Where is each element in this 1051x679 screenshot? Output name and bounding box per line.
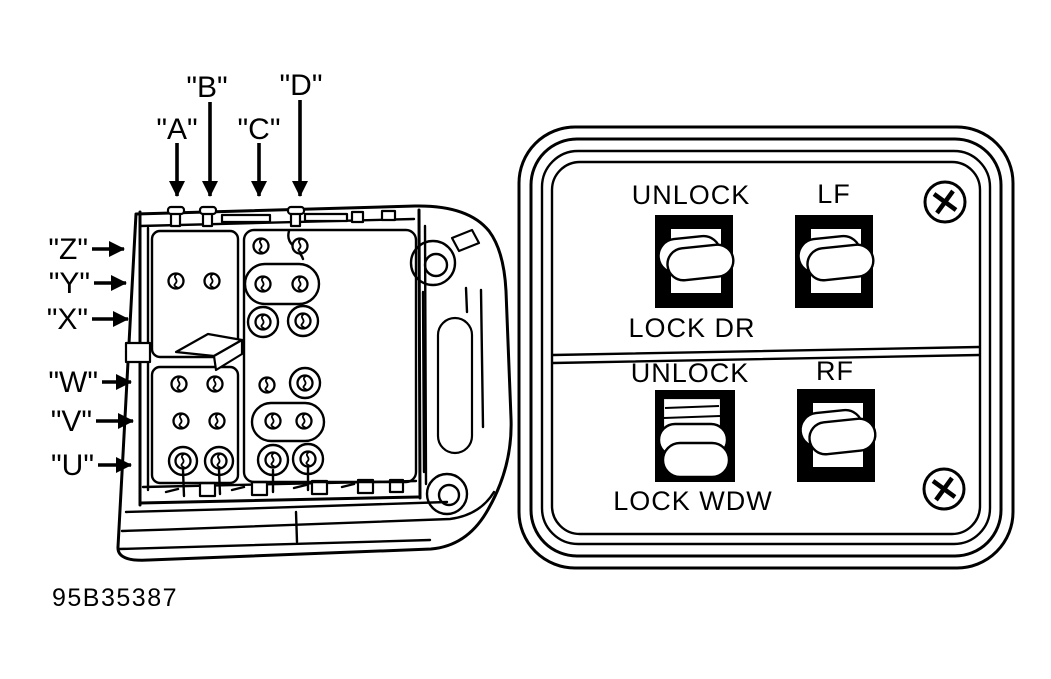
terminal-pin — [174, 414, 189, 429]
terminal-pin — [301, 452, 316, 467]
rf-window-rocker-switch — [797, 389, 877, 482]
terminal-pin — [172, 377, 187, 392]
lock-dr-label: LOCK DR — [628, 313, 755, 343]
terminal-pin — [266, 414, 281, 429]
shell-tick — [296, 512, 297, 542]
switch-assembly-diagram: "A" "B" "C" "D" "Z" "Y" "X" "W" "V" "U" — [0, 0, 1051, 679]
section-divider — [553, 355, 979, 363]
callout-label-c: "C" — [238, 113, 281, 146]
terminal-pin — [212, 454, 227, 469]
pin-stem — [183, 470, 184, 496]
callout-label-v: "V" — [51, 405, 92, 438]
terminal-pin — [297, 414, 312, 429]
terminal-pin — [298, 376, 313, 391]
connector-figure: "A" "B" "C" "D" "Z" "Y" "X" "W" "V" "U" — [47, 69, 511, 560]
terminal-pin — [293, 239, 308, 254]
section-divider — [553, 347, 979, 355]
screw-icon — [925, 182, 965, 222]
screw-icon — [924, 469, 964, 509]
top-callouts: "A" "B" "C" "D" — [156, 69, 322, 196]
callout-label-d: "D" — [280, 69, 323, 102]
terminal-pin — [266, 453, 281, 468]
callout-label-y: "Y" — [49, 267, 90, 300]
terminal-pin — [256, 315, 271, 330]
lf-label: LF — [817, 179, 851, 209]
callout-label-b: "B" — [186, 71, 227, 104]
terminal-pin — [296, 314, 311, 329]
diagram-canvas: "A" "B" "C" "D" "Z" "Y" "X" "W" "V" "U" — [0, 0, 1051, 679]
terminal-pin — [260, 378, 275, 393]
right-wall — [419, 210, 420, 498]
callout-label-u: "U" — [51, 449, 94, 482]
terminal-pin — [256, 277, 271, 292]
callout-label-a: "A" — [156, 113, 197, 146]
lf-window-rocker-switch — [795, 215, 875, 308]
side-callouts: "Z" "Y" "X" "W" "V" "U" — [47, 233, 133, 482]
lock-wdw-label: LOCK WDW — [613, 486, 773, 516]
window-unlock-label: UNLOCK — [631, 358, 750, 388]
window-lockout-rocker-switch — [655, 390, 735, 482]
terminal-pin — [254, 239, 269, 254]
callout-label-w: "W" — [48, 366, 98, 399]
terminal-pin — [205, 274, 220, 289]
switch-panel-figure: UNLOCK LF LOCK DR UNLOCK RF LOCK WDW — [519, 127, 1013, 568]
figure-number: 95B35387 — [52, 584, 178, 612]
callout-label-x: "X" — [47, 303, 88, 336]
terminal-pin — [208, 377, 223, 392]
door-unlock-label: UNLOCK — [632, 180, 751, 210]
pin-stem — [219, 470, 220, 494]
terminal-pin — [176, 454, 191, 469]
terminal-pin — [210, 414, 225, 429]
flange-slot — [438, 318, 472, 453]
side-clip — [126, 343, 150, 362]
rf-label: RF — [816, 356, 854, 386]
terminal-pin — [293, 277, 308, 292]
door-lock-rocker-switch — [655, 215, 735, 308]
terminal-pin — [169, 274, 184, 289]
callout-label-z: "Z" — [48, 233, 88, 266]
